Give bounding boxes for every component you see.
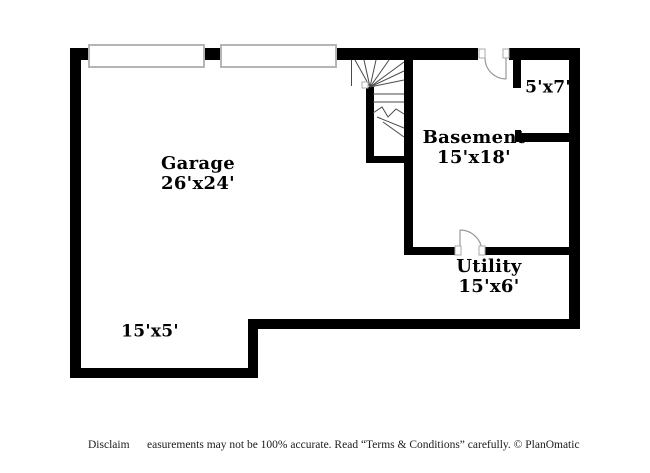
disclaimer-text: easurements may not be 100% accurate. Re…: [147, 439, 580, 451]
wall-basement-utility-right: [482, 247, 569, 255]
wall-bottom-right: [248, 319, 580, 329]
alcove-dims: 15'x5': [121, 322, 179, 341]
wall-basement-utility-left: [404, 247, 458, 255]
wall-basement-left: [404, 60, 413, 255]
small-room-label: 5'x7': [525, 78, 571, 97]
disclaimer-prefix: Disclaim: [88, 439, 130, 451]
basement-door-swing-icon: [485, 58, 506, 79]
garage-door-1: [88, 44, 205, 68]
basement-label: Basement 15'x18': [423, 128, 526, 168]
garage-label: Garage 26'x24': [161, 154, 235, 194]
disclaimer: Disclaim easurements may not be 100% acc…: [0, 439, 650, 455]
basement-name: Basement: [423, 127, 526, 148]
utility-door-swing-icon: [460, 230, 482, 251]
garage-door-2: [220, 44, 337, 68]
floor-plan: Garage 26'x24' Basement 15'x18' 5'x7' Ut…: [0, 0, 650, 473]
wall-stairwell-left: [366, 87, 374, 163]
utility-name: Utility: [456, 256, 521, 277]
garage-name: Garage: [161, 153, 235, 174]
basement-dims: 15'x18': [423, 148, 526, 168]
wall-small-room-left: [513, 60, 521, 88]
wall-stairwell-bottom: [366, 156, 404, 163]
plan-detail-lines: [0, 0, 650, 473]
wall-left: [70, 48, 81, 378]
alcove-label: 15'x5': [121, 322, 179, 341]
stairs-icon: [352, 60, 405, 137]
utility-dims: 15'x6': [456, 277, 521, 297]
wall-bottom-left: [70, 368, 258, 378]
utility-label: Utility 15'x6': [456, 257, 521, 297]
small-room-dims: 5'x7': [525, 78, 571, 97]
garage-dims: 26'x24': [161, 174, 235, 194]
